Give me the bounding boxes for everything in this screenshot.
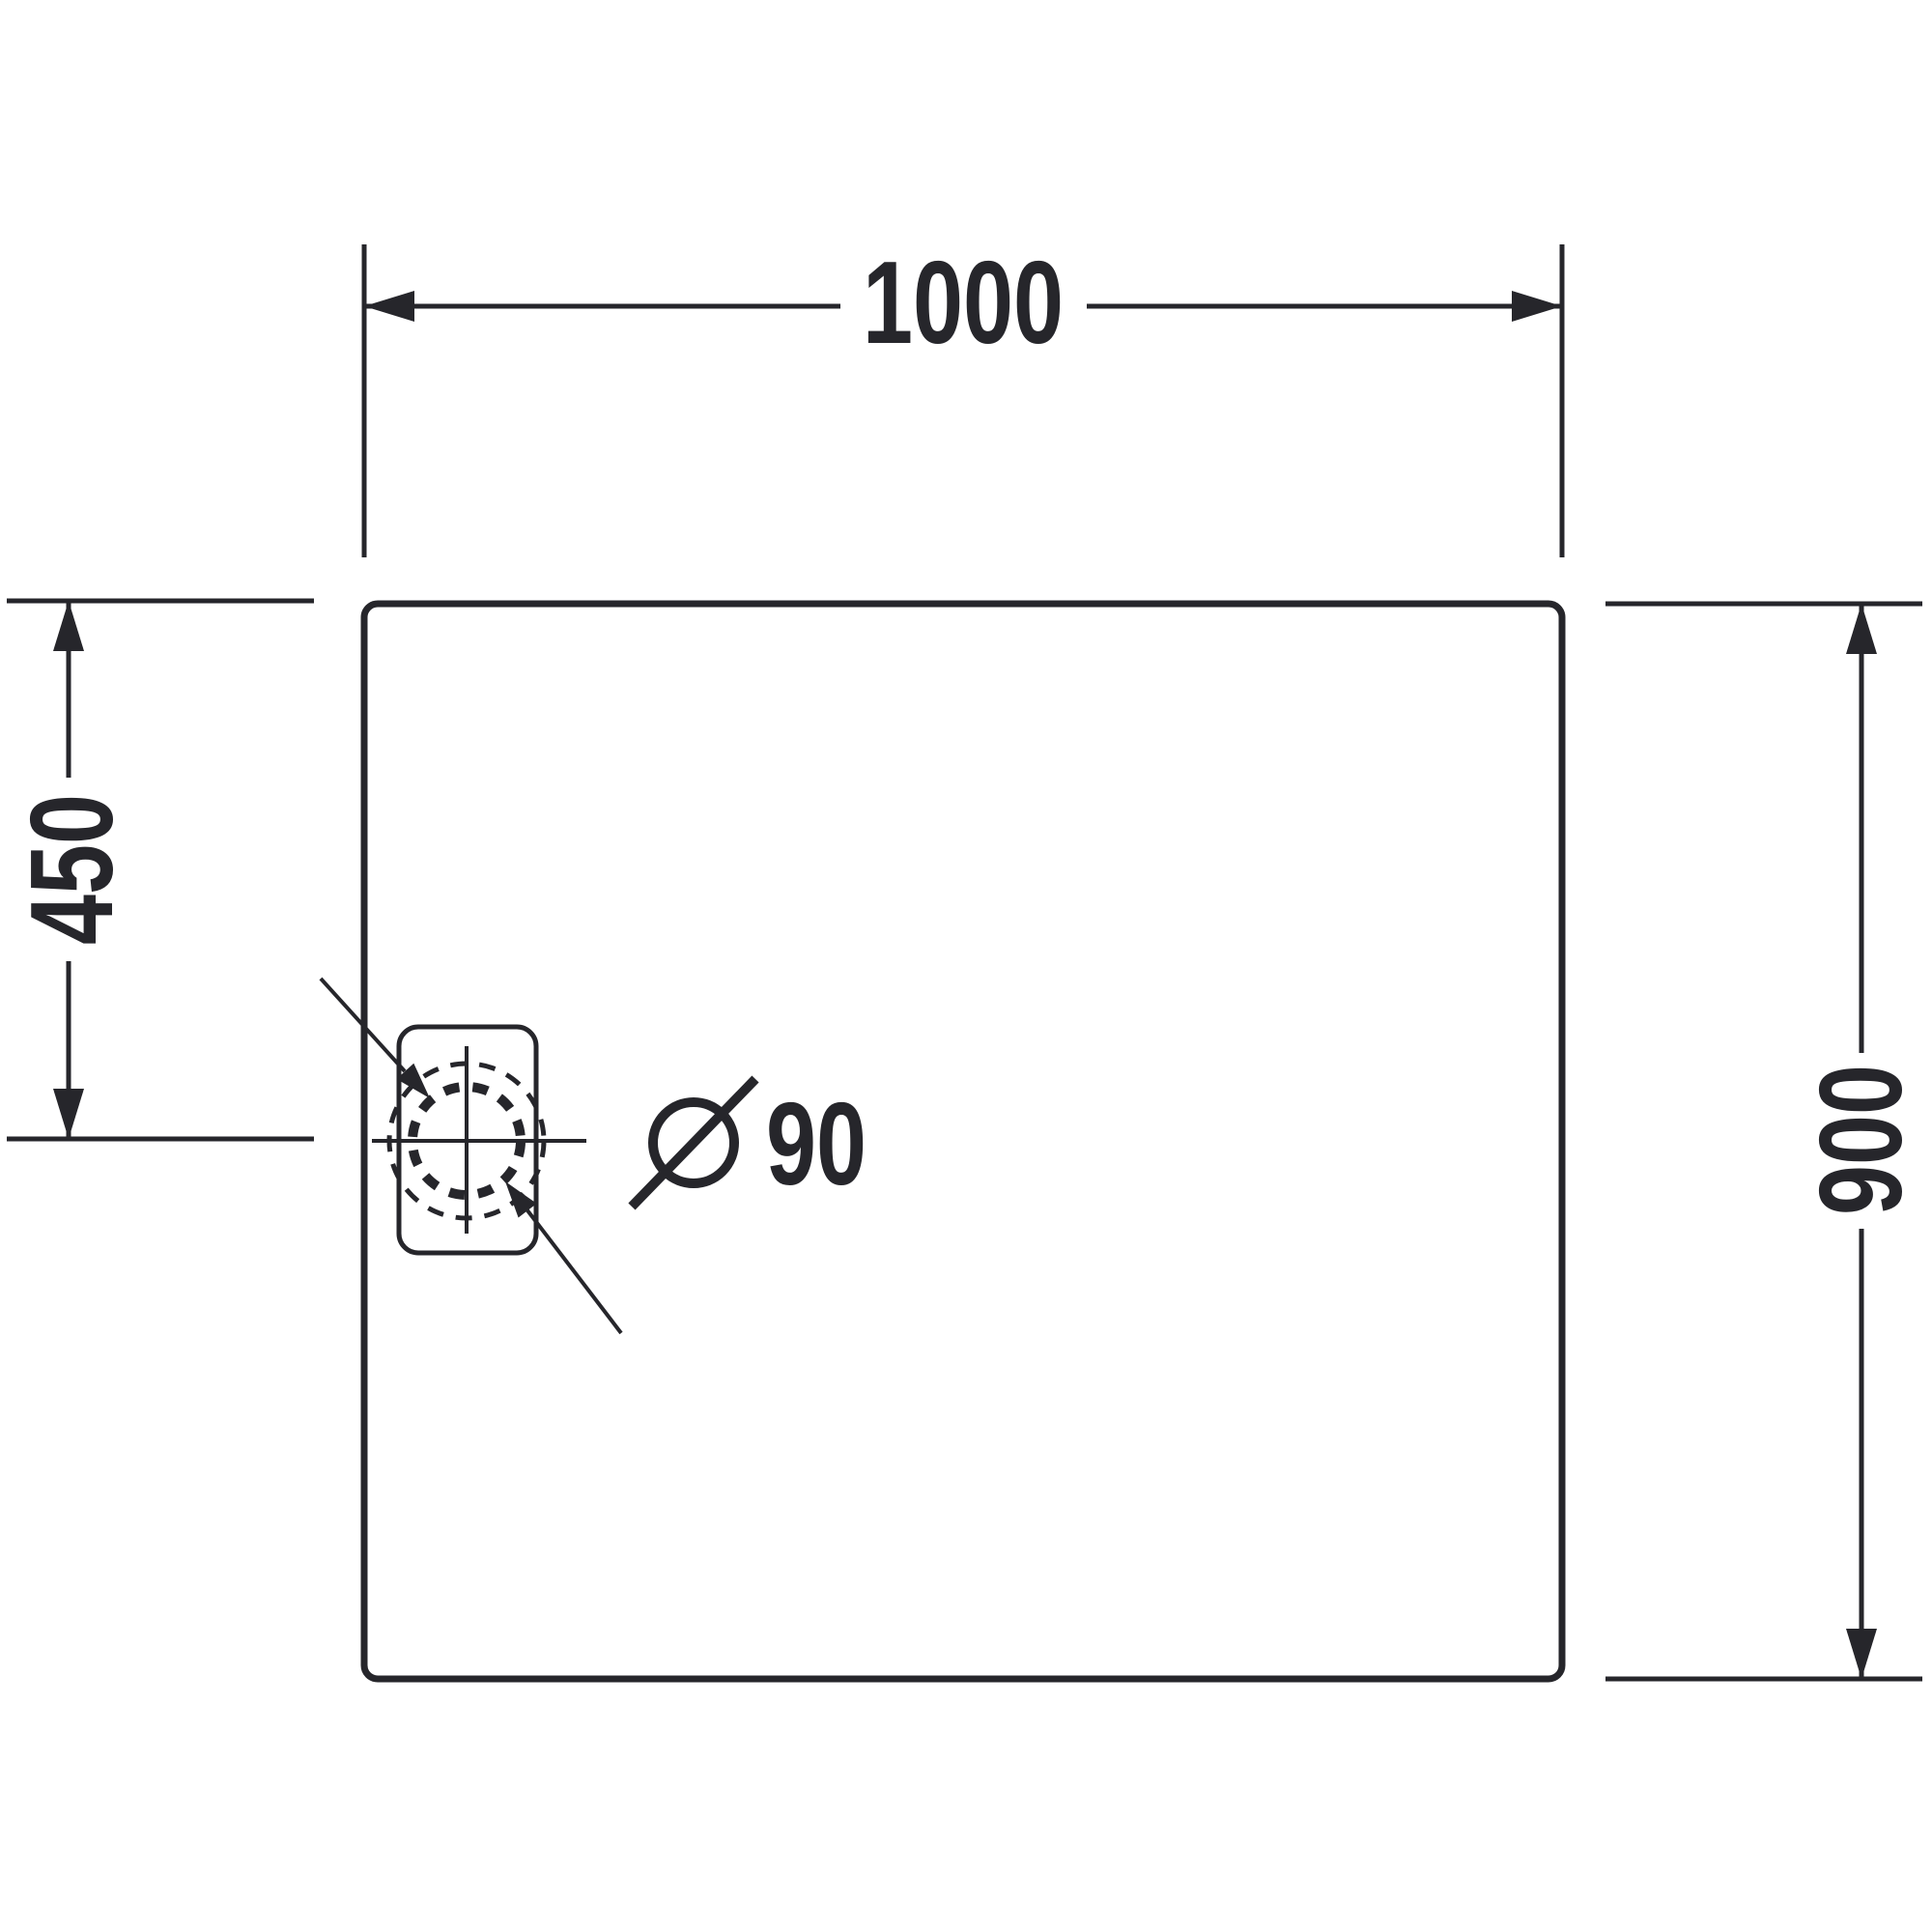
dim-width: 1000 [364,237,1562,557]
dim-width-label: 1000 [863,237,1064,368]
dim-width-arrow-left [364,291,414,322]
dim-depth-arrow-bottom [1846,1629,1877,1679]
drawing-page: 1000 450 900 90 [0,0,1932,1932]
dim-offset-arrow-top [53,601,84,651]
dim-depth-arrow-top [1846,604,1877,654]
dim-offset-label: 450 [6,794,137,945]
dim-depth: 900 [1605,604,1926,1679]
drain-diameter-label: 90 [766,1078,867,1209]
dim-drain-offset: 450 [6,601,314,1139]
drain-leader-line-lower [527,1210,621,1333]
dim-offset-arrow-bottom [53,1089,84,1139]
drain-leader-arrow-lower [505,1181,537,1218]
dim-depth-label: 900 [1795,1065,1926,1215]
diameter-annotation: 90 [632,1078,867,1209]
drawing-canvas: 1000 450 900 90 [0,0,1932,1932]
dim-width-arrow-right [1512,291,1562,322]
